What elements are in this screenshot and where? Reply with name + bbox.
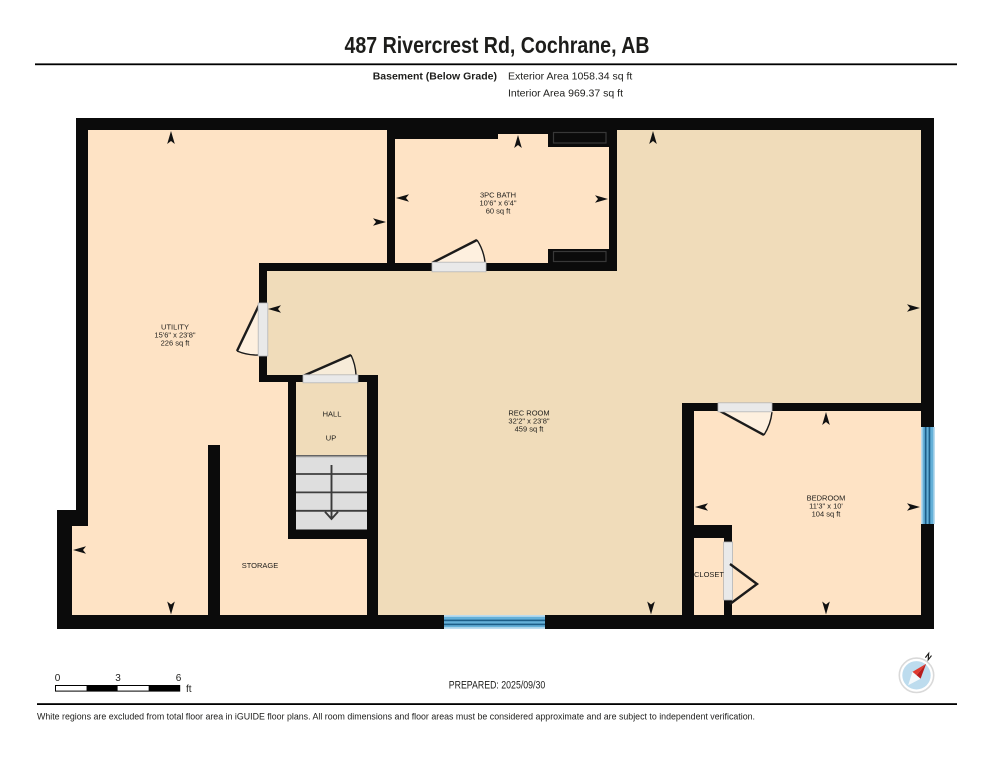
svg-text:0: 0 [55, 673, 61, 684]
svg-text:226 sq ft: 226 sq ft [161, 339, 191, 348]
svg-text:487 Rivercrest Rd, Cochrane, A: 487 Rivercrest Rd, Cochrane, AB [345, 32, 650, 58]
svg-text:60 sq ft: 60 sq ft [486, 207, 512, 216]
svg-text:White regions are excluded fro: White regions are excluded from total fl… [37, 712, 755, 722]
svg-text:104 sq ft: 104 sq ft [812, 510, 842, 519]
svg-text:Interior Area 969.37 sq ft: Interior Area 969.37 sq ft [508, 88, 623, 100]
svg-text:STORAGE: STORAGE [242, 561, 279, 570]
svg-text:CLOSET: CLOSET [694, 570, 724, 579]
svg-text:6: 6 [176, 673, 182, 684]
svg-text:Exterior Area 1058.34 sq ft: Exterior Area 1058.34 sq ft [508, 71, 632, 83]
svg-text:HALL: HALL [323, 410, 342, 419]
svg-text:3: 3 [115, 673, 121, 684]
svg-text:Basement (Below Grade): Basement (Below Grade) [373, 71, 497, 83]
svg-text:PREPARED: 2025/09/30: PREPARED: 2025/09/30 [449, 680, 546, 692]
svg-text:459 sq ft: 459 sq ft [515, 425, 545, 434]
svg-text:ft: ft [186, 684, 192, 695]
svg-text:UP: UP [326, 434, 336, 443]
